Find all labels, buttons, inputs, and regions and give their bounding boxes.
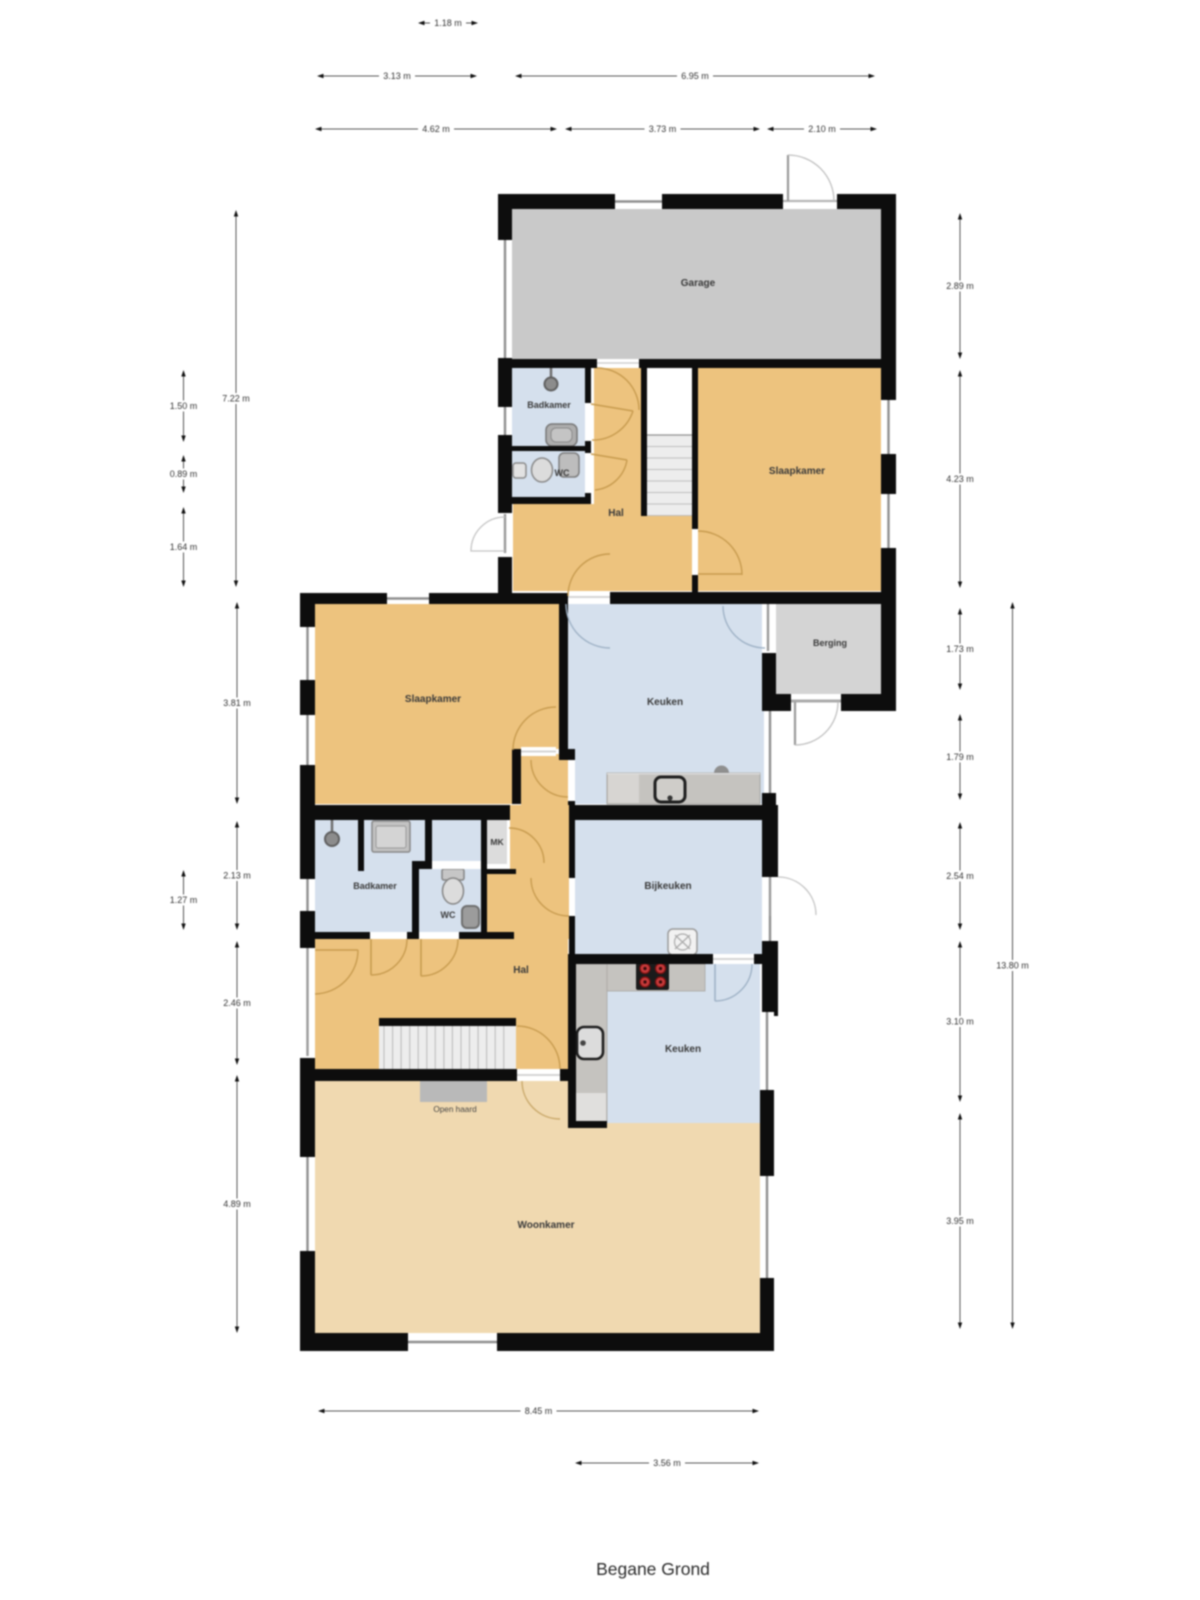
svg-text:6.95 m: 6.95 m xyxy=(681,71,709,81)
svg-text:MK: MK xyxy=(490,837,504,847)
svg-text:7.22 m: 7.22 m xyxy=(222,394,250,404)
svg-text:Berging: Berging xyxy=(813,638,847,648)
svg-text:2.46 m: 2.46 m xyxy=(223,998,251,1008)
svg-text:WC: WC xyxy=(555,468,570,478)
svg-text:2.10 m: 2.10 m xyxy=(808,124,836,134)
svg-text:Hal: Hal xyxy=(513,965,529,976)
svg-text:3.73 m: 3.73 m xyxy=(649,124,677,134)
svg-text:3.10 m: 3.10 m xyxy=(946,1017,974,1027)
svg-text:Keuken: Keuken xyxy=(647,697,683,708)
svg-text:13.80 m: 13.80 m xyxy=(996,961,1029,971)
svg-text:2.89 m: 2.89 m xyxy=(946,281,974,291)
svg-text:WC: WC xyxy=(441,910,456,920)
svg-text:Begane Grond: Begane Grond xyxy=(596,1559,710,1579)
svg-text:Keuken: Keuken xyxy=(665,1044,701,1055)
svg-text:Slaapkamer: Slaapkamer xyxy=(769,466,825,477)
svg-text:0.89 m: 0.89 m xyxy=(170,469,198,479)
svg-text:4.89 m: 4.89 m xyxy=(223,1199,251,1209)
svg-text:3.13 m: 3.13 m xyxy=(383,71,411,81)
svg-text:8.45 m: 8.45 m xyxy=(525,1406,553,1416)
svg-text:Hal: Hal xyxy=(608,508,624,519)
svg-text:4.62 m: 4.62 m xyxy=(422,124,450,134)
svg-text:Open haard: Open haard xyxy=(433,1105,477,1114)
svg-text:Woonkamer: Woonkamer xyxy=(517,1220,574,1231)
svg-text:1.79 m: 1.79 m xyxy=(946,752,974,762)
svg-text:Badkamer: Badkamer xyxy=(527,400,571,410)
svg-text:3.95 m: 3.95 m xyxy=(946,1216,974,1226)
svg-text:Garage: Garage xyxy=(681,278,716,289)
svg-text:1.64 m: 1.64 m xyxy=(170,542,198,552)
svg-text:Bijkeuken: Bijkeuken xyxy=(644,881,691,892)
svg-text:3.56 m: 3.56 m xyxy=(653,1458,681,1468)
svg-text:1.73 m: 1.73 m xyxy=(946,644,974,654)
svg-text:2.13 m: 2.13 m xyxy=(223,871,251,881)
svg-text:Badkamer: Badkamer xyxy=(353,881,397,891)
svg-text:1.50 m: 1.50 m xyxy=(170,401,198,411)
svg-text:2.54 m: 2.54 m xyxy=(946,871,974,881)
svg-text:Slaapkamer: Slaapkamer xyxy=(405,694,461,705)
svg-text:3.81 m: 3.81 m xyxy=(223,698,251,708)
svg-text:1.27 m: 1.27 m xyxy=(170,895,198,905)
svg-text:1.18 m: 1.18 m xyxy=(434,18,462,28)
svg-text:4.23 m: 4.23 m xyxy=(946,474,974,484)
